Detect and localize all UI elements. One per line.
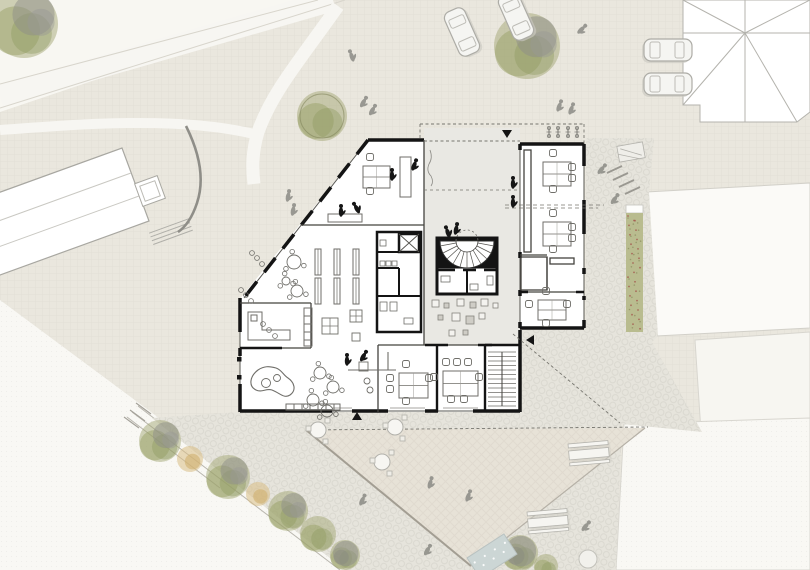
- wc-core: [377, 232, 421, 332]
- parked-car: [642, 73, 692, 97]
- bookshelf: [353, 249, 359, 275]
- bookshelf: [334, 249, 340, 275]
- bookshelf: [353, 278, 359, 304]
- seat-cube: [493, 303, 498, 308]
- planting-strip: [626, 205, 643, 332]
- existing-building-northeast: [683, 0, 810, 122]
- tree: [177, 446, 203, 472]
- bookshelf: [334, 278, 340, 304]
- seat-cube: [479, 313, 485, 319]
- seat-cube: [444, 303, 449, 308]
- seat-cube: [463, 330, 468, 335]
- tree: [297, 91, 347, 141]
- parked-car: [642, 39, 692, 63]
- tree: [246, 482, 270, 506]
- bicycle: [575, 126, 580, 137]
- round-plaza-table: [579, 550, 597, 568]
- seat-cube: [470, 302, 476, 308]
- bicycle: [547, 126, 552, 137]
- seat-cube: [432, 300, 439, 307]
- tree: [300, 516, 336, 552]
- seat-cube: [452, 313, 460, 321]
- floor-plan-canvas: [0, 0, 810, 570]
- bookshelf: [315, 278, 321, 304]
- seat-cube: [438, 315, 443, 320]
- bookshelf: [315, 249, 321, 275]
- bicycle: [566, 126, 571, 137]
- tree: [330, 540, 360, 570]
- seat-cube: [466, 316, 474, 324]
- bench: [527, 508, 571, 534]
- seat-cube: [481, 299, 488, 306]
- central-stair-core: [437, 230, 497, 294]
- tree: [139, 420, 181, 462]
- site-plan-svg: [0, 0, 810, 570]
- tree: [206, 455, 250, 499]
- bench: [568, 440, 612, 466]
- elevator-shaft: [399, 234, 419, 252]
- seat-cube: [449, 330, 455, 336]
- seat-cube: [457, 299, 464, 306]
- tree: [268, 491, 308, 531]
- bicycle: [556, 126, 561, 137]
